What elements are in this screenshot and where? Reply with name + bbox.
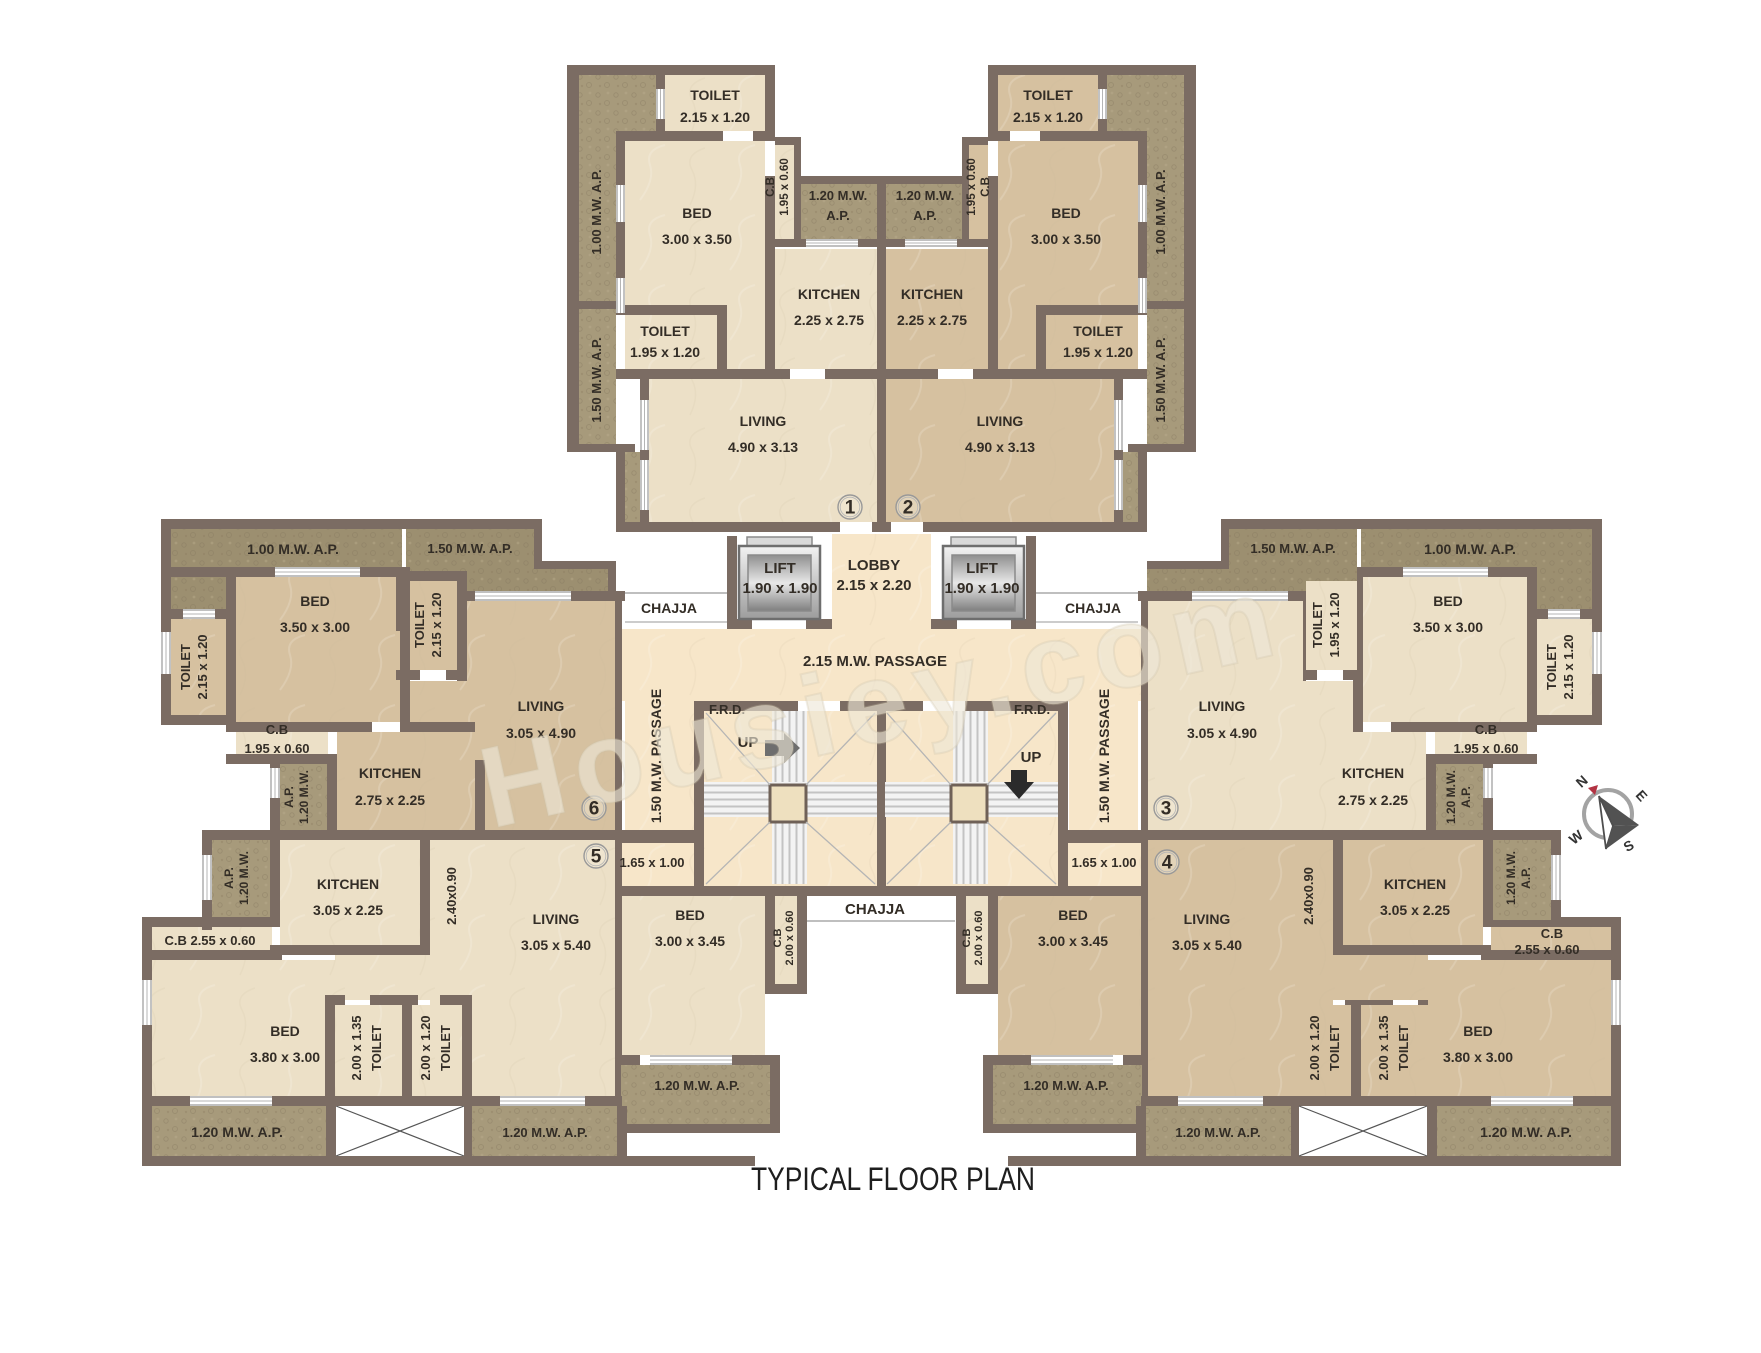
svg-text:1.95 x 0.60: 1.95 x 0.60 [1453, 741, 1518, 756]
svg-text:KITCHEN: KITCHEN [901, 286, 963, 302]
svg-text:2.15 x 1.20: 2.15 x 1.20 [1013, 109, 1083, 125]
svg-text:2.15 x 1.20: 2.15 x 1.20 [680, 109, 750, 125]
svg-text:A.P.: A.P. [222, 867, 236, 889]
svg-text:3.50 x 3.00: 3.50 x 3.00 [1413, 619, 1483, 635]
svg-text:BED: BED [1433, 593, 1463, 609]
svg-text:BED: BED [1051, 205, 1081, 221]
svg-text:TYPICAL FLOOR PLAN: TYPICAL FLOOR PLAN [751, 1161, 1035, 1197]
svg-text:1.90 x 1.90: 1.90 x 1.90 [944, 580, 1019, 597]
svg-text:C.B: C.B [1475, 722, 1497, 737]
svg-text:1.95 x 0.60: 1.95 x 0.60 [966, 158, 978, 216]
svg-text:UP: UP [1021, 749, 1042, 766]
svg-text:3.80 x 3.00: 3.80 x 3.00 [1443, 1049, 1513, 1065]
svg-text:LOBBY: LOBBY [848, 557, 901, 574]
svg-text:2.00 x 1.35: 2.00 x 1.35 [1376, 1015, 1391, 1080]
svg-text:C.B: C.B [1541, 926, 1563, 941]
svg-text:5: 5 [591, 847, 602, 868]
svg-text:LIVING: LIVING [533, 911, 580, 927]
svg-text:1.65 x 1.00: 1.65 x 1.00 [619, 855, 684, 870]
svg-text:2.55 x 0.60: 2.55 x 0.60 [1514, 942, 1579, 957]
svg-text:1.00 M.W. A.P.: 1.00 M.W. A.P. [1424, 541, 1516, 557]
svg-text:TOILET: TOILET [1023, 87, 1073, 103]
svg-text:BED: BED [300, 593, 330, 609]
svg-text:TOILET: TOILET [369, 1025, 384, 1071]
svg-text:LIFT: LIFT [966, 560, 998, 577]
svg-text:C.B: C.B [772, 928, 784, 947]
svg-text:1.20 M.W. A.P.: 1.20 M.W. A.P. [1480, 1124, 1572, 1140]
svg-text:1.95 x 1.20: 1.95 x 1.20 [1327, 592, 1342, 657]
svg-text:TOILET: TOILET [1073, 323, 1123, 339]
svg-text:KITCHEN: KITCHEN [359, 765, 421, 781]
svg-text:2.15 x 1.20: 2.15 x 1.20 [1561, 634, 1576, 699]
svg-text:BED: BED [1058, 907, 1088, 923]
svg-text:C.B: C.B [765, 177, 777, 197]
svg-text:3.80 x 3.00: 3.80 x 3.00 [250, 1049, 320, 1065]
svg-text:2.15 x 2.20: 2.15 x 2.20 [836, 577, 911, 594]
svg-text:1.50 M.W. A.P.: 1.50 M.W. A.P. [1153, 337, 1168, 422]
svg-text:A.P.: A.P. [1519, 867, 1533, 889]
svg-text:CHAJJA: CHAJJA [641, 600, 697, 616]
svg-text:3: 3 [1161, 799, 1172, 820]
svg-text:A.P.: A.P. [913, 208, 937, 223]
svg-text:KITCHEN: KITCHEN [1342, 765, 1404, 781]
svg-text:1.20 M.W.: 1.20 M.W. [297, 770, 311, 824]
svg-text:1: 1 [845, 498, 856, 519]
svg-text:C.B 2.55 x 0.60: C.B 2.55 x 0.60 [164, 933, 255, 948]
svg-text:4.90 x 3.13: 4.90 x 3.13 [965, 439, 1035, 455]
svg-text:TOILET: TOILET [438, 1025, 453, 1071]
svg-text:2.00 x 0.60: 2.00 x 0.60 [784, 910, 796, 965]
svg-text:LIVING: LIVING [740, 413, 787, 429]
svg-text:3.05 x 5.40: 3.05 x 5.40 [521, 937, 591, 953]
svg-text:2.15 x 1.20: 2.15 x 1.20 [429, 592, 444, 657]
svg-text:BED: BED [675, 907, 705, 923]
svg-text:1.20 M.W. A.P.: 1.20 M.W. A.P. [1023, 1078, 1108, 1093]
svg-text:1.95 x 0.60: 1.95 x 0.60 [244, 741, 309, 756]
svg-text:1.20 M.W. A.P.: 1.20 M.W. A.P. [502, 1125, 587, 1140]
svg-text:2.00 x 1.20: 2.00 x 1.20 [418, 1015, 433, 1080]
svg-text:1.20 M.W.: 1.20 M.W. [809, 188, 868, 203]
svg-text:2.75 x 2.25: 2.75 x 2.25 [1338, 792, 1408, 808]
svg-text:A.P.: A.P. [282, 786, 296, 808]
svg-text:1.20 M.W. A.P.: 1.20 M.W. A.P. [1175, 1125, 1260, 1140]
svg-text:2.25 x 2.75: 2.25 x 2.75 [897, 312, 967, 328]
svg-text:3.00 x 3.50: 3.00 x 3.50 [1031, 231, 1101, 247]
svg-text:KITCHEN: KITCHEN [798, 286, 860, 302]
svg-text:A.P.: A.P. [1459, 786, 1473, 808]
svg-text:3.00 x 3.45: 3.00 x 3.45 [1038, 933, 1108, 949]
svg-text:2.40x0.90: 2.40x0.90 [444, 867, 459, 925]
svg-text:1.20 M.W.: 1.20 M.W. [1504, 851, 1518, 905]
svg-text:2.15 x 1.20: 2.15 x 1.20 [195, 634, 210, 699]
svg-text:1.20 M.W.: 1.20 M.W. [237, 851, 251, 905]
svg-text:1.20 M.W.: 1.20 M.W. [896, 188, 955, 203]
svg-text:1.00 M.W. A.P.: 1.00 M.W. A.P. [247, 541, 339, 557]
svg-text:3.05 x 2.25: 3.05 x 2.25 [313, 902, 383, 918]
svg-text:1.95 x 1.20: 1.95 x 1.20 [630, 344, 700, 360]
svg-text:LIVING: LIVING [977, 413, 1024, 429]
svg-text:1.65 x 1.00: 1.65 x 1.00 [1071, 855, 1136, 870]
svg-text:2: 2 [903, 498, 914, 519]
svg-text:TOILET: TOILET [640, 323, 690, 339]
svg-text:TOILET: TOILET [1327, 1025, 1342, 1071]
svg-text:LIVING: LIVING [1184, 911, 1231, 927]
svg-text:TOILET: TOILET [178, 644, 193, 690]
svg-text:1.95 x 0.60: 1.95 x 0.60 [779, 158, 791, 216]
svg-text:A.P.: A.P. [826, 208, 850, 223]
svg-text:3.50 x 3.00: 3.50 x 3.00 [280, 619, 350, 635]
svg-text:KITCHEN: KITCHEN [317, 876, 379, 892]
svg-text:4.90 x 3.13: 4.90 x 3.13 [728, 439, 798, 455]
svg-text:LIFT: LIFT [764, 560, 796, 577]
svg-text:TOILET: TOILET [1310, 602, 1325, 648]
svg-text:C.B: C.B [980, 177, 992, 197]
svg-text:1.20 M.W. A.P.: 1.20 M.W. A.P. [654, 1078, 739, 1093]
svg-text:TOILET: TOILET [412, 602, 427, 648]
svg-text:3.00 x 3.45: 3.00 x 3.45 [655, 933, 725, 949]
svg-text:3.05 x 5.40: 3.05 x 5.40 [1172, 937, 1242, 953]
svg-text:TOILET: TOILET [690, 87, 740, 103]
svg-text:KITCHEN: KITCHEN [1384, 876, 1446, 892]
svg-text:C.B: C.B [961, 928, 973, 947]
svg-text:2.00 x 0.60: 2.00 x 0.60 [973, 910, 985, 965]
svg-text:2.00 x 1.20: 2.00 x 1.20 [1307, 1015, 1322, 1080]
svg-text:TOILET: TOILET [1544, 644, 1559, 690]
svg-text:1.00 M.W. A.P.: 1.00 M.W. A.P. [589, 169, 604, 254]
svg-text:2.75 x 2.25: 2.75 x 2.25 [355, 792, 425, 808]
svg-text:1.50 M.W. A.P.: 1.50 M.W. A.P. [589, 337, 604, 422]
svg-text:3.05 x 2.25: 3.05 x 2.25 [1380, 902, 1450, 918]
svg-text:LIVING: LIVING [1199, 698, 1246, 714]
svg-text:2.40x0.90: 2.40x0.90 [1301, 867, 1316, 925]
svg-text:1.20 M.W. A.P.: 1.20 M.W. A.P. [191, 1124, 283, 1140]
svg-text:1.95 x 1.20: 1.95 x 1.20 [1063, 344, 1133, 360]
svg-text:4: 4 [1162, 853, 1173, 874]
svg-text:1.00 M.W. A.P.: 1.00 M.W. A.P. [1153, 169, 1168, 254]
svg-text:1.90 x 1.90: 1.90 x 1.90 [742, 580, 817, 597]
svg-text:3.05 x 4.90: 3.05 x 4.90 [1187, 725, 1257, 741]
svg-text:3.00 x 3.50: 3.00 x 3.50 [662, 231, 732, 247]
svg-text:TOILET: TOILET [1396, 1025, 1411, 1071]
svg-text:BED: BED [682, 205, 712, 221]
svg-text:CHAJJA: CHAJJA [845, 901, 905, 918]
svg-text:2.25 x 2.75: 2.25 x 2.75 [794, 312, 864, 328]
svg-text:BED: BED [270, 1023, 300, 1039]
svg-text:BED: BED [1463, 1023, 1493, 1039]
svg-text:C.B: C.B [266, 722, 288, 737]
svg-text:1.50 M.W. A.P.: 1.50 M.W. A.P. [427, 541, 512, 556]
svg-text:1.20 M.W.: 1.20 M.W. [1444, 770, 1458, 824]
svg-text:2.00 x 1.35: 2.00 x 1.35 [349, 1015, 364, 1080]
